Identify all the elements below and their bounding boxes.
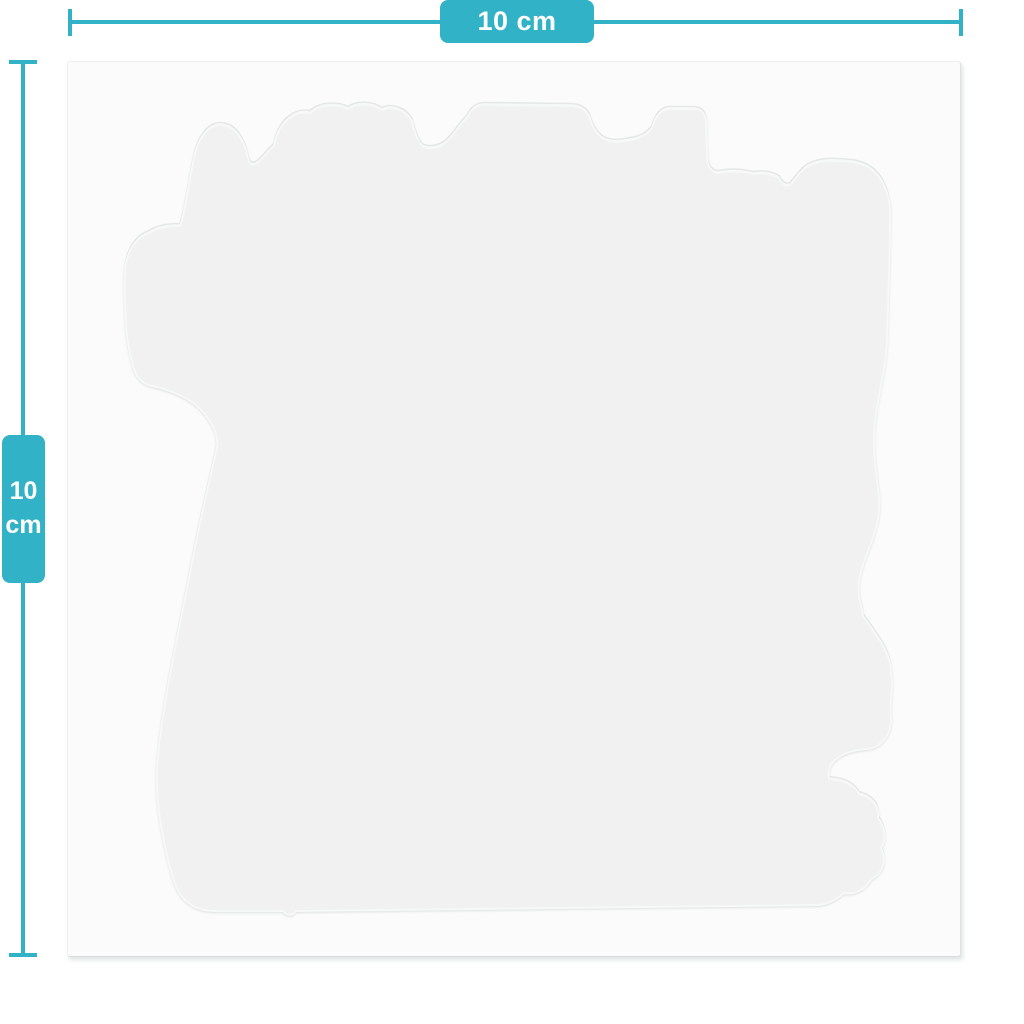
dimension-end-cap-bottom: [9, 953, 37, 957]
sticker-backing-sheet: [67, 61, 961, 957]
height-value: 10: [10, 475, 38, 509]
product-dimension-diagram: 10 cm 10 cm: [0, 0, 1024, 1024]
dimension-end-cap-right: [959, 9, 963, 36]
width-label-badge: 10 cm: [440, 0, 594, 43]
height-label-badge: 10 cm: [2, 435, 45, 583]
height-unit: cm: [5, 509, 41, 543]
width-label: 10 cm: [477, 6, 556, 37]
